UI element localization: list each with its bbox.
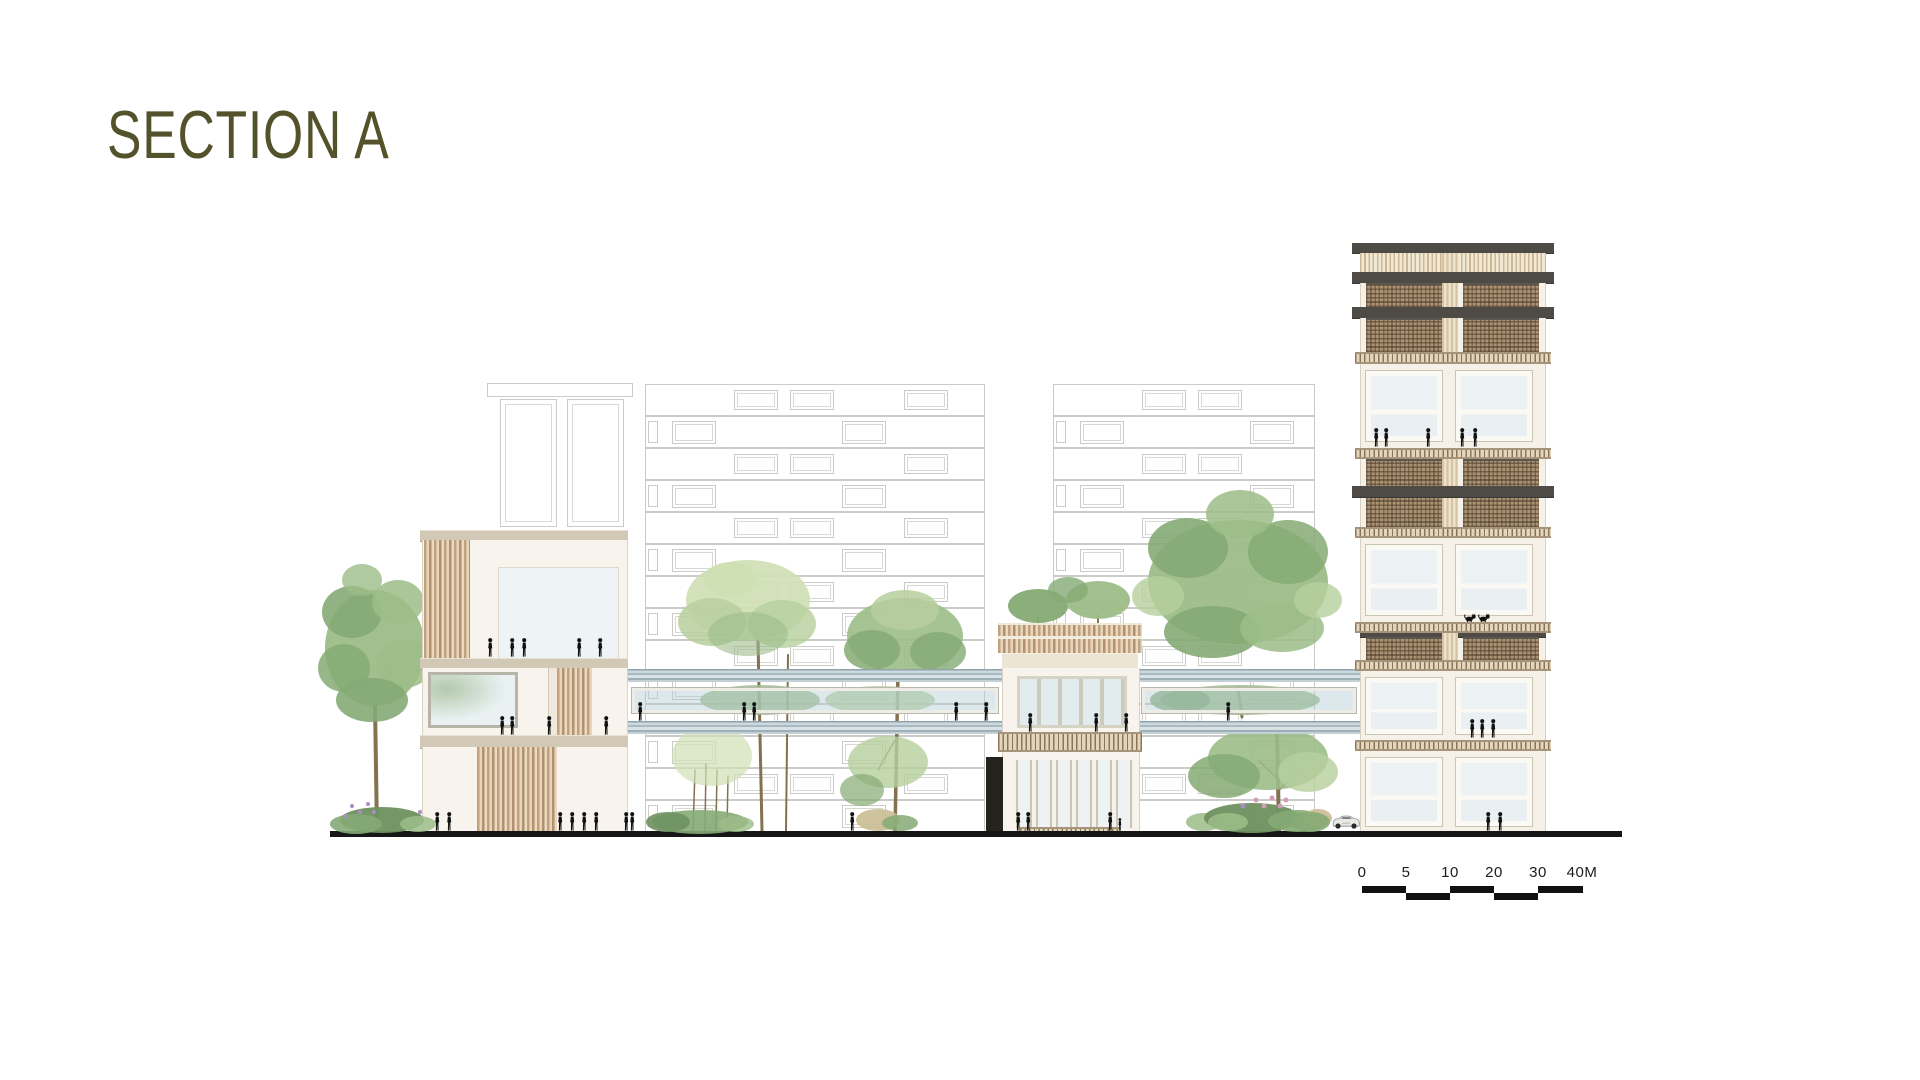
person-silhouette (568, 812, 576, 831)
background-window-inner (793, 521, 831, 535)
pavilion-parapet-rail (998, 636, 1142, 639)
background-window-inner (1201, 585, 1239, 599)
background-window (1080, 421, 1124, 444)
tower-balustrade-band (1355, 352, 1551, 364)
background-facade-row (645, 768, 985, 800)
background-facade-row (645, 736, 985, 768)
background-window-inner (1253, 808, 1291, 825)
tower-mesh-panel (1463, 318, 1539, 352)
background-window-inner (737, 777, 775, 791)
person-silhouette (486, 638, 494, 657)
person-silhouette (580, 812, 588, 831)
background-window (904, 582, 948, 602)
background-window-inner (1201, 777, 1239, 791)
tower-balustrade-band (1355, 740, 1551, 751)
left-building-wood-panel-ground (477, 747, 557, 832)
background-facade-row (645, 480, 985, 512)
background-window (1142, 454, 1186, 474)
background-window-inner (1201, 393, 1239, 407)
person-silhouette (1471, 428, 1479, 447)
background-window-inner (845, 424, 883, 441)
walkway-east-floor-slab (1138, 721, 1360, 734)
background-window (842, 421, 886, 444)
background-window (648, 421, 658, 443)
person-silhouette (498, 716, 506, 735)
ground-line (330, 831, 1622, 837)
background-window (672, 485, 716, 508)
tower-window (1456, 371, 1532, 441)
background-facade-row (645, 448, 985, 480)
background-window-inner (845, 616, 883, 633)
tower-mesh-panel (1366, 318, 1442, 352)
tower-window (1456, 758, 1532, 826)
background-window-inner (845, 488, 883, 505)
background-small-building-cornice (487, 383, 633, 397)
background-window (1198, 390, 1242, 410)
background-window (1080, 485, 1124, 508)
tower-core-column (1442, 253, 1458, 272)
background-window-inner (793, 457, 831, 471)
background-window-inner (675, 744, 713, 761)
tower-core-column (1442, 283, 1458, 307)
background-facade-row (645, 512, 985, 544)
background-window (1198, 518, 1242, 538)
background-facade-row (645, 800, 985, 832)
background-window (672, 613, 716, 636)
background-window (1198, 582, 1242, 602)
tree-left (318, 564, 432, 831)
background-window (734, 390, 778, 410)
person-silhouette (1489, 719, 1497, 738)
background-window (842, 613, 886, 636)
person-silhouette (1024, 812, 1032, 831)
background-window-inner (1253, 488, 1291, 505)
background-window-inner (1253, 552, 1291, 569)
background-window-inner (675, 424, 713, 441)
person-silhouette (1117, 818, 1123, 831)
background-facade-row (1053, 512, 1315, 544)
background-window-inner (1201, 457, 1239, 471)
person-silhouette (740, 702, 748, 721)
background-window (1250, 549, 1294, 572)
background-window (648, 805, 658, 827)
scale-bar-label: 20 (1485, 864, 1503, 881)
background-window (904, 454, 948, 474)
section-drawing-canvas: SECTION A (0, 0, 1920, 1080)
background-window-inner (845, 744, 883, 761)
background-window-inner (1201, 521, 1239, 535)
background-window (1142, 774, 1186, 794)
background-window-inner (793, 649, 831, 663)
background-window (1198, 774, 1242, 794)
background-window (734, 774, 778, 794)
background-window (734, 454, 778, 474)
background-window-inner (907, 585, 945, 599)
person-silhouette (433, 812, 441, 831)
tower-window (1366, 758, 1442, 826)
background-window-inner (907, 777, 945, 791)
background-window (904, 390, 948, 410)
flower (372, 810, 376, 814)
background-window (1250, 613, 1294, 636)
flower (344, 814, 348, 818)
background-facade-row (1053, 480, 1315, 512)
background-window (1250, 741, 1294, 764)
flower (366, 802, 370, 806)
person-silhouette (982, 702, 990, 721)
tower-window (1366, 678, 1442, 734)
background-window-inner (793, 393, 831, 407)
background-window-inner (737, 649, 775, 663)
background-window-inner (1083, 488, 1121, 505)
background-window (842, 485, 886, 508)
background-window-inner (1145, 777, 1183, 791)
person-silhouette (596, 638, 604, 657)
person-silhouette (545, 716, 553, 735)
background-window (842, 549, 886, 572)
background-window (790, 582, 834, 602)
shrub (340, 807, 424, 833)
background-window-inner (737, 521, 775, 535)
person-silhouette (508, 716, 516, 735)
background-window (842, 741, 886, 764)
person-silhouette (1468, 719, 1476, 738)
background-window (904, 646, 948, 666)
tower-window (1456, 545, 1532, 615)
background-window (1198, 646, 1242, 666)
background-window-inner (1083, 424, 1121, 441)
person-silhouette (1478, 719, 1486, 738)
background-window-inner (907, 393, 945, 407)
scale-bar-label: 40M (1567, 864, 1598, 881)
cat-silhouette (1463, 612, 1476, 622)
person-silhouette (1224, 702, 1232, 721)
tower-mesh-panel (1463, 283, 1539, 307)
background-window (734, 518, 778, 538)
background-window (1250, 805, 1294, 828)
tower-mesh-panel (1366, 637, 1442, 660)
person-silhouette (592, 812, 600, 831)
background-window (648, 741, 658, 763)
background-window (648, 613, 658, 635)
person-silhouette (508, 638, 516, 657)
background-window (1198, 454, 1242, 474)
background-window (1250, 421, 1294, 444)
background-facade-row (1053, 384, 1315, 416)
person-silhouette (1372, 428, 1380, 447)
background-window (1056, 485, 1066, 507)
person-silhouette (445, 812, 453, 831)
background-facade-row (1053, 544, 1315, 576)
background-window-inner (1253, 424, 1291, 441)
background-facade-row (1053, 576, 1315, 608)
person-silhouette (636, 702, 644, 721)
walkway-east-glass-balustrade (1142, 688, 1356, 713)
walkway-west-roof-slab (628, 669, 1002, 682)
background-window (1056, 421, 1066, 443)
person-silhouette (628, 812, 636, 831)
flower (358, 810, 362, 814)
background-window-inner (675, 552, 713, 569)
person-silhouette (556, 812, 564, 831)
person-silhouette (1382, 428, 1390, 447)
background-panel-inner (572, 404, 619, 522)
tower-balustrade-band (1355, 527, 1551, 538)
background-facade-row (1053, 416, 1315, 448)
background-window-inner (737, 585, 775, 599)
background-small-building-panel (567, 399, 624, 527)
background-window (672, 805, 716, 828)
scale-bar-segment (1406, 893, 1450, 900)
walkway-west-glass-balustrade (632, 688, 998, 713)
person-silhouette (848, 812, 856, 831)
background-panel-inner (505, 404, 552, 522)
background-window-inner (1253, 744, 1291, 761)
tower-balustrade-band (1355, 448, 1551, 459)
tower-dark-slab (1352, 486, 1554, 498)
scale-bar: 0510203040M (1362, 864, 1586, 904)
tower-window (1366, 545, 1442, 615)
background-window (1080, 549, 1124, 572)
scale-bar-segment (1450, 886, 1494, 893)
background-facade-row (645, 608, 985, 640)
background-window-inner (793, 777, 831, 791)
background-facade-row (645, 384, 985, 416)
background-window (672, 421, 716, 444)
left-building-wood-panel-top (424, 540, 470, 658)
background-window (734, 646, 778, 666)
background-facade-row (645, 544, 985, 576)
background-window (648, 485, 658, 507)
left-building-wood-panel-mid (557, 668, 592, 735)
background-window-inner (675, 808, 713, 825)
sectioned-core-wall (986, 757, 1003, 832)
person-silhouette (520, 638, 528, 657)
scale-bar-label: 0 (1358, 864, 1367, 881)
tower-mesh-panel (1463, 637, 1539, 660)
scale-bar-label: 5 (1402, 864, 1411, 881)
background-small-building-panel (500, 399, 557, 527)
background-window-inner (1145, 521, 1183, 535)
background-facade-row (645, 416, 985, 448)
background-facade-row (645, 640, 985, 672)
background-window-inner (675, 616, 713, 633)
person-silhouette (1484, 812, 1492, 831)
background-window (1142, 646, 1186, 666)
background-window (672, 549, 716, 572)
background-window-inner (675, 488, 713, 505)
background-facade-row (1053, 448, 1315, 480)
scale-bar-segment (1538, 886, 1583, 893)
person-silhouette (575, 638, 583, 657)
person-silhouette (1092, 713, 1100, 732)
background-window-inner (737, 393, 775, 407)
background-facade-row (645, 576, 985, 608)
background-window-inner (1145, 585, 1183, 599)
background-window (1056, 549, 1066, 571)
person-silhouette (1106, 812, 1114, 831)
pavilion-balustrade-band (998, 732, 1142, 752)
background-window (790, 518, 834, 538)
tower-core-column (1442, 318, 1458, 352)
background-window-inner (1145, 457, 1183, 471)
person-silhouette (1122, 713, 1130, 732)
scale-bar-segment (1494, 893, 1538, 900)
tower-balustrade-band (1355, 660, 1551, 671)
background-window (648, 549, 658, 571)
background-window-inner (1083, 552, 1121, 569)
background-window-inner (1145, 649, 1183, 663)
person-silhouette (1026, 713, 1034, 732)
car-silhouette (1331, 812, 1361, 832)
tower-balustrade-band (1355, 622, 1551, 633)
scale-bar-segment (1362, 886, 1406, 893)
person-silhouette (1014, 812, 1022, 831)
background-window (734, 582, 778, 602)
walkway-west-floor-slab (628, 721, 1002, 734)
background-window-inner (1145, 393, 1183, 407)
tower-mesh-panel (1366, 283, 1442, 307)
scale-bar-label: 30 (1529, 864, 1547, 881)
background-window-inner (907, 649, 945, 663)
background-window-inner (1253, 616, 1291, 633)
person-silhouette (952, 702, 960, 721)
person-silhouette (750, 702, 758, 721)
flower (350, 804, 354, 808)
background-window-inner (907, 521, 945, 535)
section-scene: 0510203040M (0, 0, 1920, 1080)
background-window (790, 454, 834, 474)
background-window (904, 518, 948, 538)
background-window (790, 646, 834, 666)
walkway-east-roof-slab (1138, 669, 1360, 682)
background-window (790, 390, 834, 410)
person-silhouette (1496, 812, 1504, 831)
person-silhouette (602, 716, 610, 735)
scale-bar-label: 10 (1441, 864, 1459, 881)
tower-core-column (1442, 633, 1458, 660)
background-window (790, 774, 834, 794)
background-window (1142, 518, 1186, 538)
background-window (1142, 582, 1186, 602)
background-window-inner (845, 552, 883, 569)
cat-silhouette (1477, 612, 1490, 622)
background-window (672, 741, 716, 764)
background-window (904, 774, 948, 794)
background-window-inner (793, 585, 831, 599)
person-silhouette (1424, 428, 1432, 447)
background-window-inner (907, 457, 945, 471)
background-window-inner (737, 457, 775, 471)
background-window-inner (1201, 649, 1239, 663)
background-window (1250, 485, 1294, 508)
person-silhouette (1458, 428, 1466, 447)
background-window (1142, 390, 1186, 410)
